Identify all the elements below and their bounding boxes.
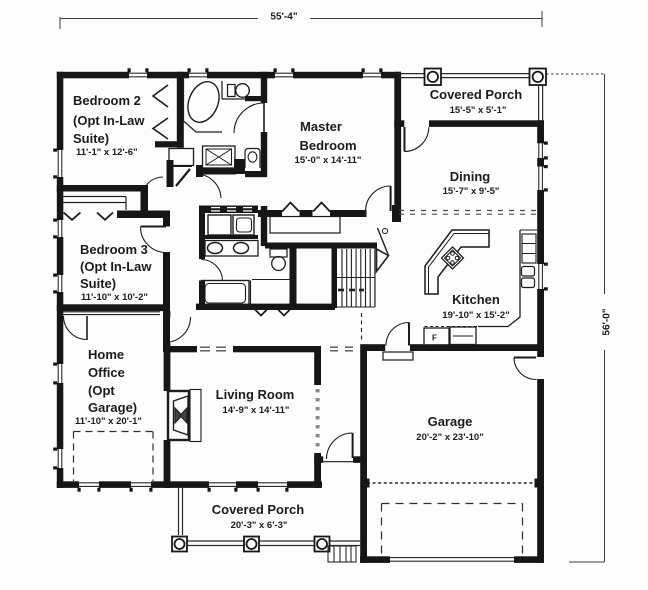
svg-text:Bedroom 2: Bedroom 2 — [73, 93, 141, 108]
svg-text:11'-10" x 20'-1": 11'-10" x 20'-1" — [75, 416, 142, 427]
svg-text:20'-3" x 6'-3": 20'-3" x 6'-3" — [231, 520, 288, 531]
svg-text:(Opt In-Law: (Opt In-Law — [80, 259, 152, 274]
svg-text:Dining: Dining — [450, 169, 490, 184]
svg-text:Home: Home — [88, 347, 124, 362]
svg-text:(Opt In-Law: (Opt In-Law — [73, 113, 145, 128]
svg-text:14'-9" x 14'-11": 14'-9" x 14'-11" — [223, 405, 290, 416]
svg-text:20'-2" x 23'-10": 20'-2" x 23'-10" — [416, 432, 483, 443]
svg-text:Suite): Suite) — [80, 276, 116, 291]
svg-text:15'-0" x 14'-11": 15'-0" x 14'-11" — [295, 155, 362, 166]
svg-text:Suite): Suite) — [73, 131, 109, 146]
svg-text:Master: Master — [300, 119, 342, 134]
svg-text:Covered Porch: Covered Porch — [212, 502, 305, 517]
svg-text:11'-10" x 10'-2": 11'-10" x 10'-2" — [81, 292, 148, 303]
svg-text:Living Room: Living Room — [216, 387, 295, 402]
svg-text:Covered Porch: Covered Porch — [430, 87, 523, 102]
svg-text:56'-0": 56'-0" — [602, 308, 613, 335]
svg-text:15'-5" x 5'-1": 15'-5" x 5'-1" — [450, 105, 507, 116]
svg-text:Garage: Garage — [428, 414, 473, 429]
svg-text:15'-7" x 9'-5": 15'-7" x 9'-5" — [443, 186, 500, 197]
svg-text:Kitchen: Kitchen — [452, 292, 500, 307]
svg-text:(Opt: (Opt — [88, 383, 115, 398]
svg-text:Bedroom: Bedroom — [299, 138, 356, 153]
svg-text:55'-4": 55'-4" — [270, 12, 297, 23]
svg-text:Office: Office — [88, 365, 125, 380]
svg-text:F: F — [432, 334, 437, 343]
svg-text:11'-1" x 12'-6": 11'-1" x 12'-6" — [76, 147, 138, 158]
svg-text:Garage): Garage) — [88, 400, 137, 415]
svg-text:19'-10" x 15'-2": 19'-10" x 15'-2" — [442, 310, 509, 321]
svg-text:Bedroom 3: Bedroom 3 — [80, 242, 148, 257]
